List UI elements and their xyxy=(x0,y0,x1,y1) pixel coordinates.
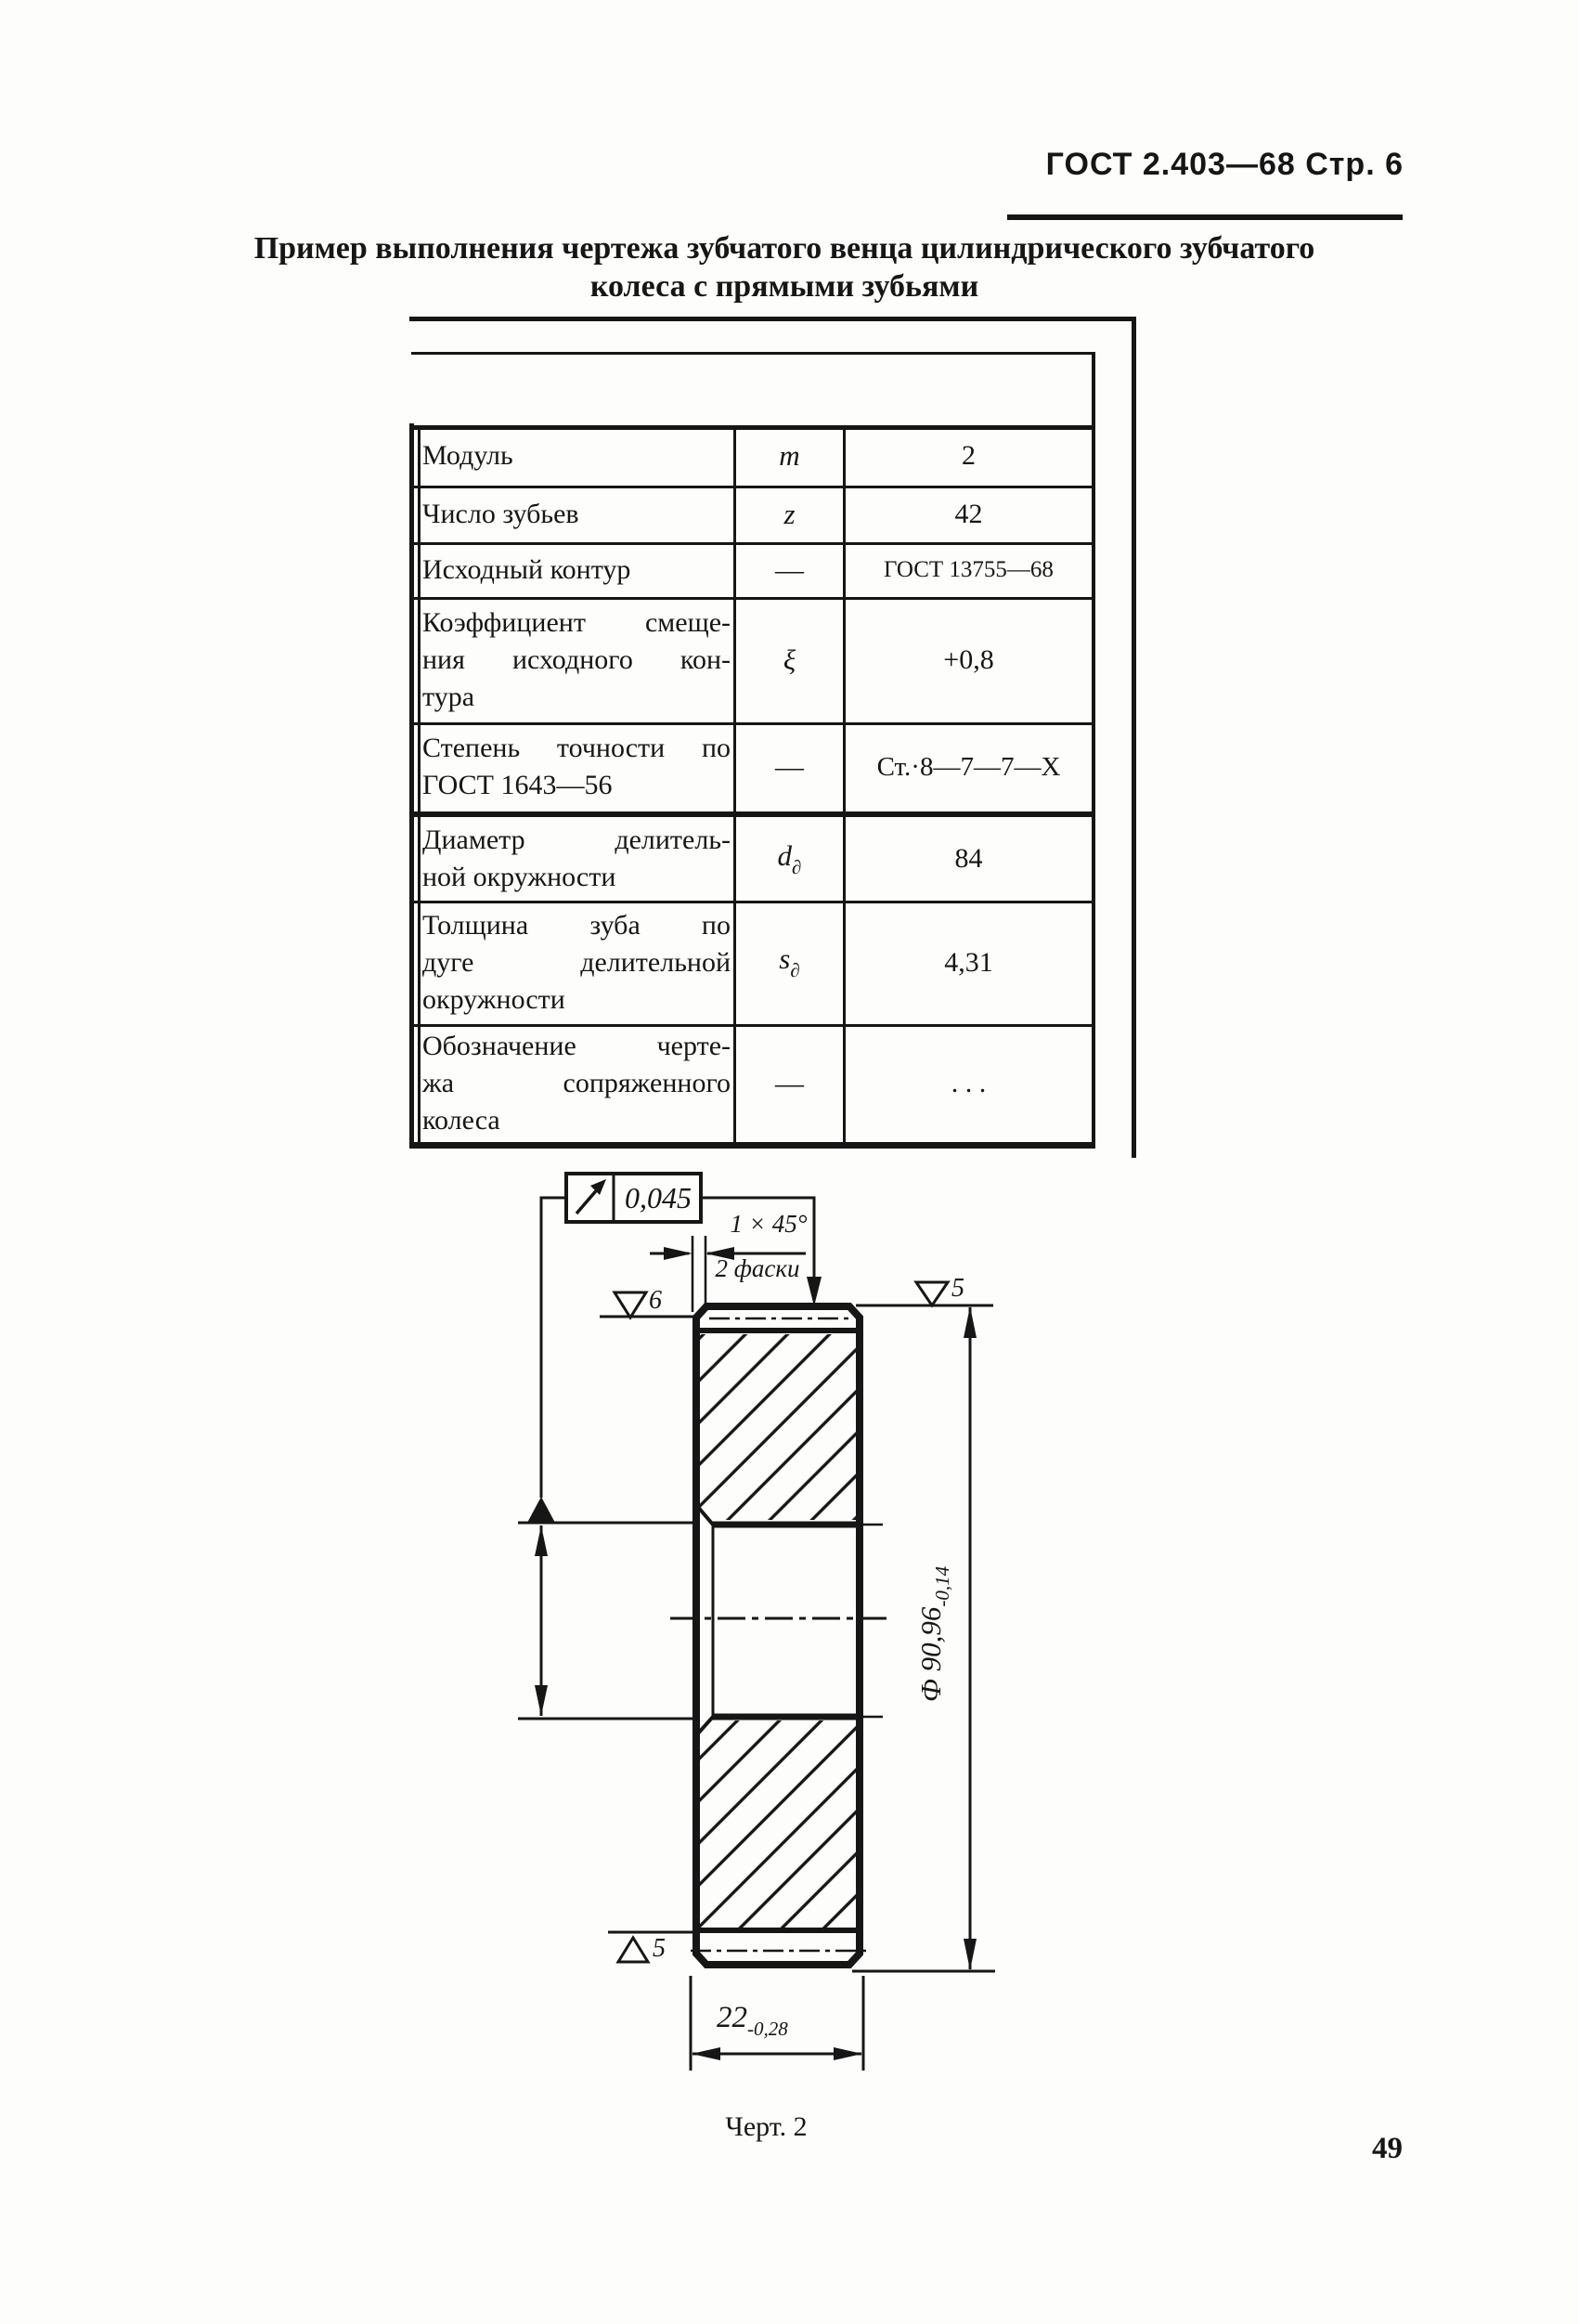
page-title: Пример выполнения чертежа зубчатого венц… xyxy=(139,229,1430,305)
datum-triangle xyxy=(527,1497,555,1523)
surface-finish-left-value: 6 xyxy=(649,1286,662,1316)
param-name: Модуль xyxy=(422,437,731,474)
chamfer-note-label: 2 фаски xyxy=(704,1254,811,1283)
param-name: колеса xyxy=(422,1102,731,1139)
runout-tolerance-value: 0,045 xyxy=(616,1181,700,1215)
param-name: Обозначение черте- xyxy=(422,1028,731,1065)
param-value: 84 xyxy=(955,843,983,875)
doc-header: ГОСТ 2.403—68 Стр. 6 xyxy=(928,147,1404,183)
table-row: Диаметр делитель- ной окружности d∂ 84 xyxy=(409,817,1095,901)
page-title-line1: Пример выполнения чертежа зубчатого венц… xyxy=(139,229,1430,267)
gear-parameters-table: Модуль m 2 Число зубьев z 42 Исходный ко… xyxy=(409,317,1143,1163)
param-name: Исходный контур xyxy=(422,552,731,589)
table-row: Модуль m 2 xyxy=(409,425,1095,486)
param-name: окружности xyxy=(422,981,731,1019)
surface-finish-mark-right xyxy=(916,1282,948,1305)
param-name: ГОСТ 1643—56 xyxy=(422,767,731,804)
param-name: Коэффициент смеще- xyxy=(422,604,731,642)
param-symbol: s∂ xyxy=(779,942,799,982)
param-value: 4,31 xyxy=(944,947,993,979)
table-row: Обозначение черте- жа сопряженного колес… xyxy=(409,1024,1095,1142)
diameter-dimension-label: Ф 90,96-0,14 xyxy=(914,1481,951,1787)
page-number: 49 xyxy=(1372,2132,1403,2166)
table-row: Исходный контур — ГОСТ 13755—68 xyxy=(409,542,1095,597)
param-symbol: — xyxy=(775,1067,804,1100)
surface-finish-mark-bottom xyxy=(608,1932,694,1962)
param-value: . . . xyxy=(951,1068,987,1099)
param-symbol: — xyxy=(775,553,804,587)
table-row: Коэффициент смеще- ния исходного кон- ту… xyxy=(409,597,1095,722)
param-name: жа сопряженного xyxy=(422,1065,731,1102)
table-row: Толщина зуба по дуге делительной окружно… xyxy=(409,901,1095,1024)
gear-hatching xyxy=(700,1334,856,1928)
surface-finish-mark-left xyxy=(600,1292,696,1318)
param-symbol: m xyxy=(779,439,799,473)
surface-finish-right-value: 5 xyxy=(951,1274,964,1304)
tolerance-leader-left xyxy=(527,1198,566,1523)
param-name: тура xyxy=(422,679,731,716)
bore-dimension xyxy=(518,1523,698,1719)
table-row: Число зубьев z 42 xyxy=(409,486,1095,542)
param-value: Ст.·8—7—7—Х xyxy=(877,752,1061,783)
table-top-rule xyxy=(409,317,1136,321)
runout-arrow-icon xyxy=(576,1179,606,1214)
param-value: 2 xyxy=(962,440,976,472)
param-symbol: ξ xyxy=(783,643,796,677)
param-symbol: — xyxy=(775,750,804,784)
param-symbol: z xyxy=(783,498,795,531)
figure-caption: Черт. 2 xyxy=(708,2111,824,2143)
param-value: 42 xyxy=(955,499,983,530)
page-title-line2: колеса с прямыми зубьями xyxy=(139,267,1430,305)
param-name: Число зубьев xyxy=(422,496,731,533)
param-name: ной окружности xyxy=(422,859,731,896)
param-name: Толщина зуба по xyxy=(422,907,731,944)
bore-lines xyxy=(697,1506,883,1734)
param-name: дуге делительной xyxy=(422,944,731,981)
surface-finish-bottom-value: 5 xyxy=(653,1934,666,1964)
table-bottom-border xyxy=(409,1142,1095,1149)
param-value: ГОСТ 13755—68 xyxy=(884,557,1054,583)
param-name: Степень точности по xyxy=(422,730,731,767)
param-symbol: d∂ xyxy=(778,839,802,879)
table-row: Степень точности по ГОСТ 1643—56 — Ст.·8… xyxy=(409,722,1095,811)
header-underline xyxy=(1007,214,1403,220)
param-value: +0,8 xyxy=(943,644,993,676)
table-inner-top-border xyxy=(411,352,1094,355)
param-name: Диаметр делитель- xyxy=(422,822,731,859)
chamfer-dimension-label: 1 × 45° xyxy=(717,1210,821,1239)
width-dimension-label: 22-0,28 xyxy=(717,2001,788,2041)
table-outer-right-border xyxy=(1132,317,1136,1158)
param-name: ния исходного кон- xyxy=(422,642,731,679)
